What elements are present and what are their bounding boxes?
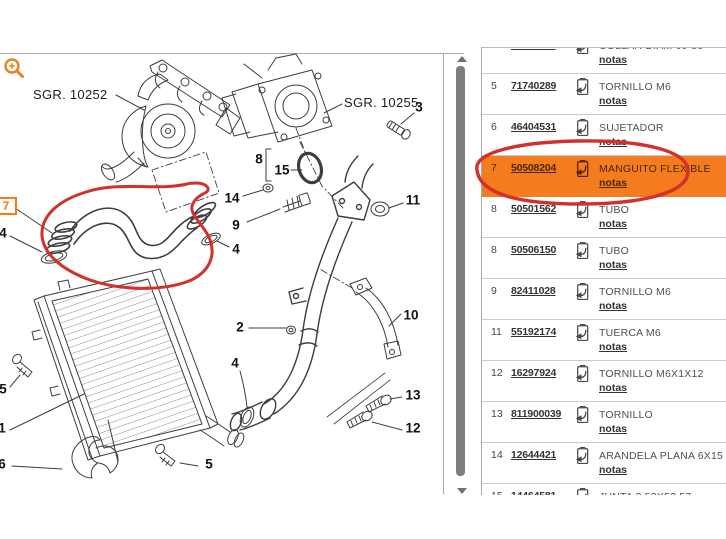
callout-number-4: 4 xyxy=(231,356,239,371)
callout-number-14: 14 xyxy=(224,191,239,206)
part-description-cell: MANGUITO FLEXIBLE notas xyxy=(599,162,726,190)
table-row[interactable]: 13 811900039 TORNILLO notas xyxy=(482,402,726,443)
row-ref-number: 7 xyxy=(482,162,511,174)
part-description-cell: JUNTA 3,53X53,57 notas xyxy=(599,490,726,495)
part-number-link[interactable]: 82411028 xyxy=(511,285,572,297)
part-description-cell: TUERCA M6 notas xyxy=(599,326,726,354)
part-description: SUJETADOR xyxy=(599,121,726,135)
callout-number-4: 4 xyxy=(232,242,240,257)
table-row[interactable]: 6 46404531 SUJETADOR notas xyxy=(482,115,726,156)
callout-number-6: 6 xyxy=(0,457,6,472)
part-description: TUERCA M6 xyxy=(599,326,726,340)
part-description: TUBO xyxy=(599,244,726,258)
intake-pipe xyxy=(228,156,373,432)
stud-9 xyxy=(283,193,311,212)
part-description-cell: ARANDELA PLANA 6X15 notas xyxy=(599,449,726,477)
sgr-label-10252: SGR. 10252 xyxy=(33,87,108,102)
part-number-link[interactable]: 14464581 xyxy=(511,490,572,495)
notas-link[interactable]: notas xyxy=(599,94,627,108)
transfer-part-icon[interactable] xyxy=(572,283,599,302)
part-number-link[interactable]: 50508204 xyxy=(511,162,572,174)
bolt-12 xyxy=(347,409,374,428)
callout-number-4: 4 xyxy=(0,226,7,241)
scroll-up-arrow-icon[interactable] xyxy=(457,56,467,62)
notas-link[interactable]: notas xyxy=(599,422,627,436)
transfer-part-icon[interactable] xyxy=(572,488,599,495)
zoom-in-magnifier-icon[interactable] xyxy=(3,57,26,80)
callout-number-2: 2 xyxy=(236,320,244,335)
transfer-part-icon[interactable] xyxy=(572,447,599,466)
transfer-part-icon[interactable] xyxy=(572,47,599,56)
callout-number-15: 15 xyxy=(274,163,289,178)
scrollbar-thumb[interactable] xyxy=(456,66,465,476)
part-description: ARANDELA PLANA 6X15 xyxy=(599,449,726,463)
sgr-label-10255: SGR. 10255 xyxy=(344,95,419,110)
parts-list-panel: 4 71714118 COLLAR DIAM 60-80 notas 5 717… xyxy=(481,47,726,495)
row-ref-number: 9 xyxy=(482,285,511,297)
part-description-cell: TORNILLO M6 notas xyxy=(599,285,726,313)
callout-number-11: 11 xyxy=(406,193,420,208)
part-number-link[interactable]: 16297924 xyxy=(511,367,572,379)
part-description: TORNILLO M6X1X12 xyxy=(599,367,726,381)
table-row[interactable]: 5 71740289 TORNILLO M6 notas xyxy=(482,74,726,115)
part-number-link[interactable]: 71714118 xyxy=(511,47,572,51)
table-row[interactable]: 14 12644421 ARANDELA PLANA 6X15 notas xyxy=(482,443,726,484)
part-description: TORNILLO M6 xyxy=(599,285,726,299)
part-description-cell: TUBO notas xyxy=(599,203,726,231)
part-description-cell: TORNILLO M6X1X12 notas xyxy=(599,367,726,395)
row-ref-number: 14 xyxy=(482,449,511,461)
callout-number-3: 3 xyxy=(415,100,423,115)
construction-lines xyxy=(152,128,352,288)
table-row[interactable]: 12 16297924 TORNILLO M6X1X12 notas xyxy=(482,361,726,402)
transfer-part-icon[interactable] xyxy=(572,201,599,220)
part-number-link[interactable]: 46404531 xyxy=(511,121,572,133)
notas-link[interactable]: notas xyxy=(599,381,627,395)
part-description: TUBO xyxy=(599,203,726,217)
part-description: TORNILLO M6 xyxy=(599,80,726,94)
washer-14 xyxy=(263,184,273,192)
part-description-cell: SUJETADOR notas xyxy=(599,121,726,149)
bolt-5-left xyxy=(11,353,32,377)
row-ref-number: 12 xyxy=(482,367,511,379)
transfer-part-icon[interactable] xyxy=(572,160,599,179)
part-description-cell: TUBO notas xyxy=(599,244,726,272)
part-description-cell: TORNILLO notas xyxy=(599,408,726,436)
nut-11 xyxy=(371,202,389,216)
part-number-link[interactable]: 811900039 xyxy=(511,408,572,420)
part-description-cell: COLLAR DIAM 60-80 notas xyxy=(599,47,726,67)
part-description-cell: TORNILLO M6 notas xyxy=(599,80,726,108)
transfer-part-icon[interactable] xyxy=(572,119,599,138)
table-row[interactable]: 9 82411028 TORNILLO M6 notas xyxy=(482,279,726,320)
notas-link[interactable]: notas xyxy=(599,463,627,477)
notas-link[interactable]: notas xyxy=(599,176,627,190)
scroll-down-arrow-icon[interactable] xyxy=(457,488,467,494)
bolt-3 xyxy=(385,119,412,141)
part-description: MANGUITO FLEXIBLE xyxy=(599,162,726,176)
transfer-part-icon[interactable] xyxy=(572,365,599,384)
callout-number-13: 13 xyxy=(405,388,420,403)
transfer-part-icon[interactable] xyxy=(572,78,599,97)
intercooler xyxy=(32,269,246,460)
transfer-part-icon[interactable] xyxy=(572,324,599,343)
notas-link[interactable]: notas xyxy=(599,299,627,313)
notas-link[interactable]: notas xyxy=(599,340,627,354)
callout-number-5: 5 xyxy=(0,382,7,397)
part-number-link[interactable]: 50506150 xyxy=(511,244,572,256)
bolt-5-right xyxy=(154,443,175,466)
callout-number-8: 8 xyxy=(255,152,263,167)
row-ref-number: 8 xyxy=(482,244,511,256)
transfer-part-icon[interactable] xyxy=(572,242,599,261)
highlighted-callout-7: 7 xyxy=(0,197,17,215)
parts-list: 4 71714118 COLLAR DIAM 60-80 notas 5 717… xyxy=(482,47,726,495)
notas-link[interactable]: notas xyxy=(599,258,627,272)
bracket-10 xyxy=(350,278,401,359)
row-ref-number: 6 xyxy=(482,121,511,133)
callout-number-9: 9 xyxy=(232,218,240,233)
parts-catalog-page: SGR. 10252 SGR. 10255 7 3815149114424101… xyxy=(0,0,726,539)
notas-link[interactable]: notas xyxy=(599,53,627,67)
table-row[interactable]: 15 14464581 JUNTA 3,53X53,57 notas xyxy=(482,484,726,495)
row-ref-number: 13 xyxy=(482,408,511,420)
grommet-2 xyxy=(287,326,296,334)
part-number-link[interactable]: 55192174 xyxy=(511,326,572,338)
callout-number-5: 5 xyxy=(205,457,213,472)
part-description: TORNILLO xyxy=(599,408,726,422)
table-row[interactable]: 8 50501562 TUBO notas xyxy=(482,197,726,238)
throttle-assembly xyxy=(222,54,332,142)
row-ref-number: 15 xyxy=(482,490,511,495)
notas-link[interactable]: notas xyxy=(599,135,627,149)
row-ref-number: 11 xyxy=(482,326,511,338)
part-number-link[interactable]: 71740289 xyxy=(511,80,572,92)
row-ref-number: 8 xyxy=(482,203,511,215)
row-ref-number: 5 xyxy=(482,80,511,92)
row-ref-number: 4 xyxy=(482,47,511,51)
vertical-scrollbar[interactable] xyxy=(454,56,468,494)
table-row[interactable]: 7 50508204 MANGUITO FLEXIBLE notas xyxy=(482,156,726,197)
table-row[interactable]: 4 71714118 COLLAR DIAM 60-80 notas xyxy=(482,47,726,74)
part-number-link[interactable]: 12644421 xyxy=(511,449,572,461)
notas-link[interactable]: notas xyxy=(599,217,627,231)
table-row[interactable]: 8 50506150 TUBO notas xyxy=(482,238,726,279)
transfer-part-icon[interactable] xyxy=(572,406,599,425)
part-description: JUNTA 3,53X53,57 xyxy=(599,490,726,495)
callout-number-10: 10 xyxy=(403,308,418,323)
part-number-link[interactable]: 50501562 xyxy=(511,203,572,215)
table-row[interactable]: 11 55192174 TUERCA M6 notas xyxy=(482,320,726,361)
o-ring xyxy=(295,150,325,185)
flexible-hose-7 xyxy=(45,200,217,259)
callout-number-1: 1 xyxy=(0,421,6,436)
callout-number-12: 12 xyxy=(405,421,420,436)
